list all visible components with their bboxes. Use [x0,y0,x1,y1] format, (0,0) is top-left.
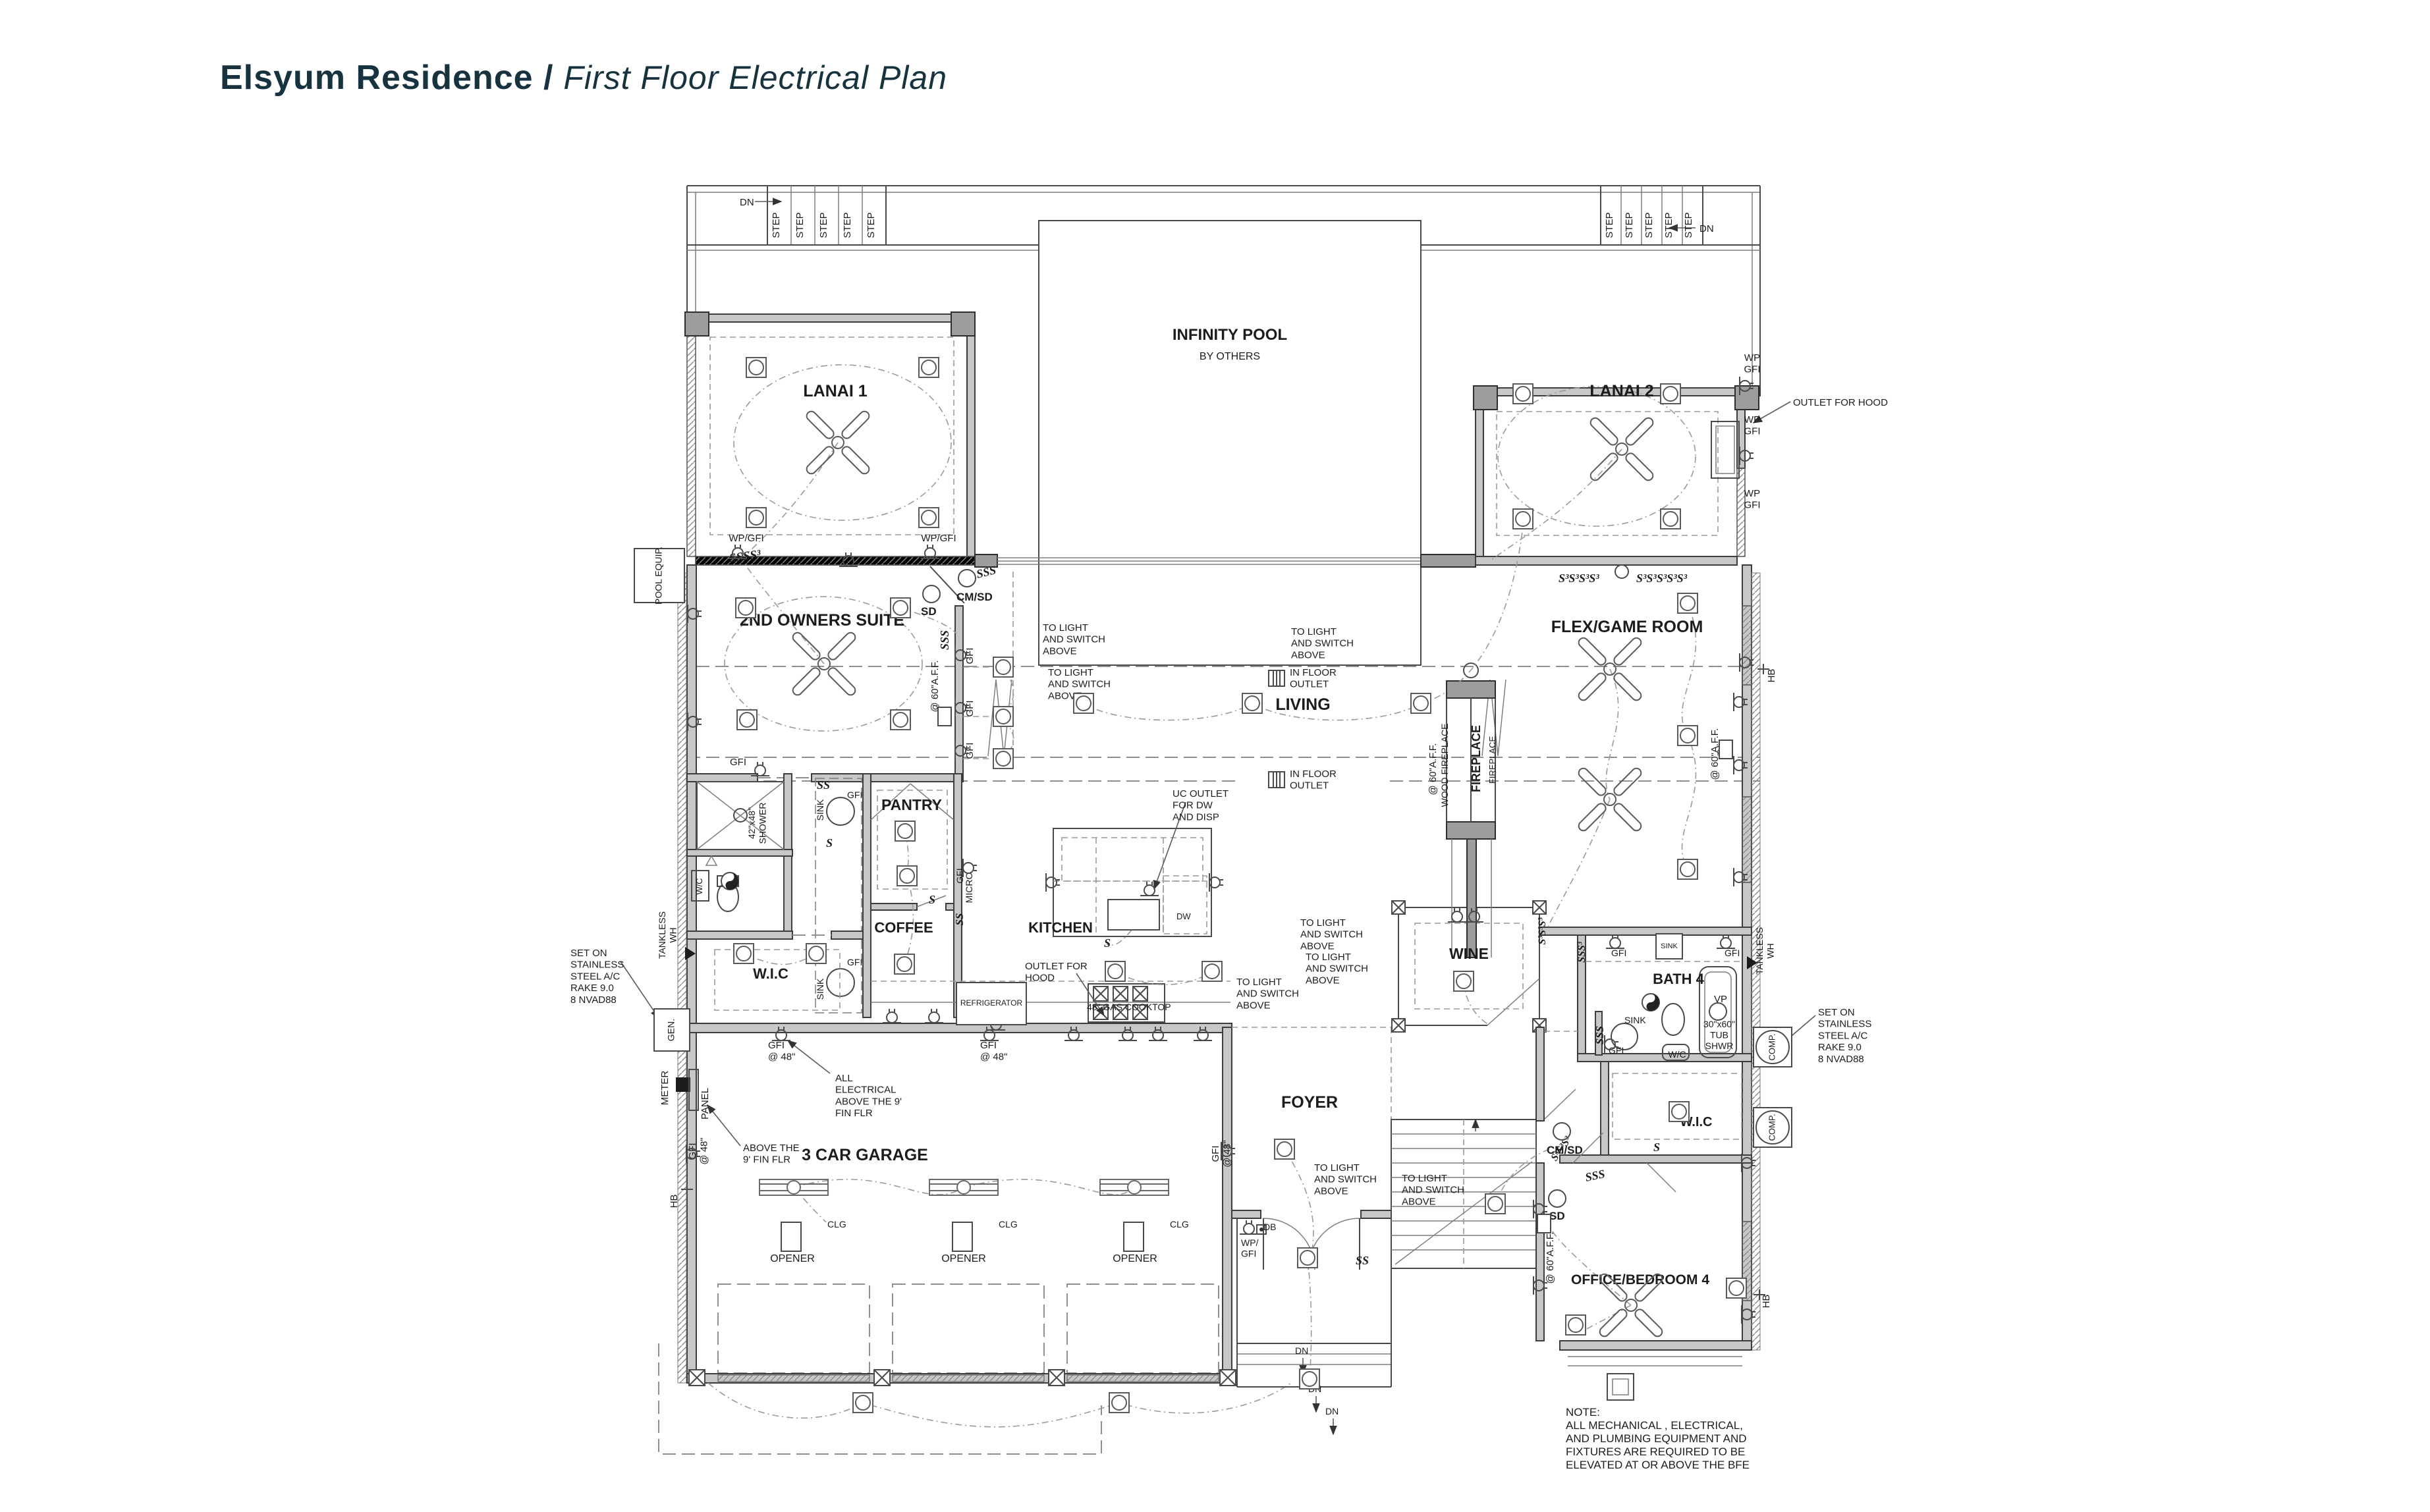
recessed-light [1202,961,1222,981]
recessed-light [993,657,1013,677]
comp-box: COMP. [1753,1108,1792,1147]
tankless-wh: TANKLESSWH [657,911,678,959]
duplex-outlet [1606,934,1624,948]
switch: SSS [938,630,951,650]
island-sink-box [1108,900,1159,930]
room-label-lanai-1: LANAI 1 [803,382,867,400]
recessed-light [853,1393,873,1413]
clg: CLG [999,1219,1018,1229]
dn-label: DN [1295,1345,1308,1356]
tv-outlet-box [938,707,951,726]
to-light-switch: TO LIGHTAND SWITCHABOVE [1291,626,1354,661]
recessed-light [746,358,766,377]
pool-equip-box: POOL EQUIP. [634,547,684,605]
outlet-for-hood: OUTLET FORHOOD [1025,961,1088,984]
fireplace-label: FIREPLACE [1470,725,1483,792]
recessed-light [1726,1278,1746,1298]
recessed-light [746,508,766,527]
room-label-pantry: PANTRY [881,796,942,813]
comp-box-label: COMP. [1767,1114,1777,1141]
sd: SD [921,605,937,618]
floor-plan: LANAI 1LANAI 2INFINITY POOL2ND OWNERS SU… [0,0,2430,1512]
step-label: STEP [818,212,829,238]
sd-light [923,585,940,603]
room-label-flex-game-room: FLEX/GAME ROOM [1551,618,1703,636]
gfi: GFI [1611,948,1626,958]
recessed-light [1669,1102,1689,1121]
room-label-infinity-pool: INFINITY POOL [1173,326,1287,344]
opener-box [953,1222,972,1251]
step-label: STEP [866,212,877,238]
tv-outlet-box [1537,1214,1551,1233]
recessed-light [1678,859,1698,879]
vp: VP [1714,994,1727,1005]
gfi: GFI@ 48" [980,1040,1007,1063]
panel: PANEL [700,1088,711,1120]
step-label: STEP [1604,212,1615,238]
pool-equip-box-label: POOL EQUIP. [653,547,664,605]
dw: DW [1176,911,1191,921]
db: DB [1263,1222,1276,1232]
step-label: STEP [1643,212,1655,238]
switch: SSS³ [1576,942,1588,963]
opener: OPENER [770,1253,815,1264]
recessed-light [897,866,917,886]
to-light-switch: TO LIGHTAND SWITCHABOVE [1043,622,1105,657]
room-label-foyer: FOYER [1281,1093,1338,1112]
wc: W/C [694,878,704,894]
wood-fireplace: WOOD FIREPLACE [1439,724,1450,807]
fireplace-label: FIREPLACE [1487,736,1497,784]
in-floor-outlet: IN FLOOROUTLET [1290,769,1337,792]
sheet-name: First Floor Electrical Plan [553,59,947,96]
dn-label: DN [1699,223,1714,234]
project-name: Elsyum Residence / [220,59,553,97]
room-label-lanai-2: LANAI 2 [1589,382,1653,400]
room-label-coffee: COFFEE [874,919,933,936]
all-electrical-note: ALLELECTRICALABOVE THE 9'FIN FLR [835,1073,902,1119]
wp-gfi: WPGFI [1744,488,1761,511]
recessed-light [1513,384,1533,404]
to-light-switch: TO LIGHTAND SWITCHABOVE [1236,977,1299,1011]
switch: S³S³S³S³ [1559,572,1599,585]
sink: SINK [1624,1015,1646,1025]
sd: SD [1549,1210,1565,1222]
gen-box: GEN. [654,1009,690,1051]
dn-label: DN [1325,1406,1339,1417]
floor-outlet [1269,772,1284,788]
recessed-light [806,944,826,963]
tub: 30"x60"TUBSHWR [1703,1019,1735,1051]
recessed-light [1298,1248,1317,1268]
recessed-light [993,749,1013,769]
hb: HB [669,1195,680,1208]
to-light-switch: TO LIGHTAND SWITCHABOVE [1300,917,1363,952]
wp-gfi: WP/GFI [921,533,956,544]
opener-box [1124,1222,1144,1251]
wp-gfi: WP/GFI [729,533,763,544]
set-on-ac: SET ONSTAINLESSSTEEL A/CRAKE 9.08 NVAD88 [570,948,624,1006]
refrigerator-box: REFRIGERATOR [956,983,1026,1025]
tankless-wh: TANKLESSWH [1754,927,1776,975]
switch: SS [817,778,830,792]
recessed-light [1242,693,1262,713]
recessed-light [737,710,757,730]
room-label-w-i-c: W.I.C [753,965,788,982]
floor-outlet [1269,670,1284,686]
step-label: STEP [1683,212,1694,238]
recessed-light [891,710,910,730]
recessed-light [1513,509,1533,529]
recessed-light [993,707,1013,726]
room-label-office-bedroom-4: OFFICE/BEDROOM 4 [1571,1272,1709,1287]
recessed-light [895,821,915,841]
recessed-light [1109,1393,1129,1413]
step-label: STEP [1663,212,1674,238]
gas-cooktop: 48" GAS COOKTOP [1087,1002,1171,1012]
switch: SSS [1584,1167,1607,1184]
switch: S³S³S³ [1537,917,1548,944]
recessed-light [1300,1369,1319,1389]
hb: HB [1761,1295,1772,1309]
recessed-light [1411,693,1431,713]
step-label: STEP [794,212,806,238]
comp-box-label: COMP. [1767,1034,1777,1061]
switch: S [826,836,833,850]
micro: MICRO [964,873,974,904]
aff-label: @ 60"A.F.F. [929,661,941,713]
above-fin-flr: ABOVE THE9' FIN FLR [743,1143,800,1166]
recessed-light [895,954,914,974]
cm-sd: CM/SD [956,591,993,603]
wp-gfi: WPGFI [1744,352,1761,375]
recessed-light [1566,1315,1586,1335]
wc: W/C [1668,1049,1686,1060]
recessed-light [1454,971,1474,991]
drawing-title: Elsyum Residence / First Floor Electrica… [220,58,947,97]
duplex-outlet [1448,908,1466,922]
tv-outlet-box [1719,740,1732,759]
hb: HB [1766,669,1777,683]
fluorescent-fixture [1100,1179,1169,1195]
clg: CLG [827,1219,846,1229]
to-light-switch: TO LIGHTAND SWITCHABOVE [1306,952,1368,986]
shower-size: 42"x48"SHOWER [746,803,768,844]
room-label-2nd-owners-suite: 2ND OWNERS SUITE [740,611,904,630]
opener: OPENER [941,1253,986,1264]
recessed-light [1105,961,1125,981]
cm-sd-light [958,570,976,587]
bath4-sink-box: SINK [1656,934,1682,959]
gfi: GFI [847,790,862,800]
switch: S [1104,936,1111,950]
note: NOTE:ALL MECHANICAL , ELECTRICAL,AND PLU… [1566,1406,1750,1471]
gen-box-label: GEN. [666,1019,677,1041]
duplex-outlet [1717,934,1735,948]
in-floor-outlet: IN FLOOROUTLET [1290,667,1337,690]
recessed-light [919,508,939,527]
wp-gfi: WPGFI [1744,414,1761,437]
sink: SINK [815,978,825,1000]
to-light-switch: TO LIGHTAND SWITCHABOVE [1314,1162,1377,1197]
recessed-light [919,358,939,377]
clg: CLG [1170,1219,1189,1229]
sink: SINK [815,799,825,821]
step-label: STEP [771,212,782,238]
duplex-outlet [925,1009,943,1023]
switch: S³S³S³S³S³ [1636,572,1688,585]
recessed-light [1661,384,1680,404]
room-label-kitchen: KITCHEN [1028,919,1093,936]
outlet-for-hood: OUTLET FOR HOOD [1793,397,1888,408]
gfi: GFI [1725,948,1740,958]
duplex-outlet [1240,1220,1258,1234]
sd-light [1549,1190,1566,1207]
recessed-light [1074,693,1093,713]
duplex-outlet [883,1009,901,1023]
room-label-bath-4: BATH 4 [1653,971,1705,987]
aff-label: @ 60"A.F.F. [1427,743,1439,796]
opener-box [781,1222,801,1251]
aff-label: @ 60"A.F.F. [1545,1232,1556,1284]
recessed-light [734,944,754,963]
fluorescent-fixture [929,1179,998,1195]
room-label-living: LIVING [1275,695,1330,714]
room-label-wine: WINE [1449,945,1489,962]
recessed-light [736,598,756,618]
opener: OPENER [1113,1253,1157,1264]
refrigerator-box-label: REFRIGERATOR [960,998,1023,1008]
gfi: GFI [730,757,746,768]
step-label: STEP [842,212,853,238]
recessed-light [1678,593,1698,613]
switch: S [929,893,935,906]
recessed-light [1661,509,1680,529]
recessed-light [1485,1194,1505,1214]
meter: METER [659,1071,671,1106]
gfi: GFI [847,957,862,967]
set-on-ac: SET ONSTAINLESSSTEEL A/CRAKE 9.08 NVAD88 [1818,1007,1871,1065]
dn-label: DN [740,197,754,208]
recessed-light [891,598,910,618]
bath4-sink-box-label: SINK [1661,942,1678,950]
switch: S [1653,1141,1660,1154]
recessed-light [1275,1139,1294,1159]
switch: SS [953,913,966,926]
to-light-switch: TO LIGHTAND SWITCHABOVE [1402,1173,1464,1207]
pool-subtitle: BY OTHERS [1200,351,1260,362]
uc-outlet: UC OUTLETFOR DWAND DISP [1173,788,1229,823]
switch: SS [1356,1254,1369,1267]
recessed-light [1678,726,1698,745]
sheet: Elsyum Residence / First Floor Electrica… [0,0,2430,1512]
room-label-3-car-garage: 3 CAR GARAGE [802,1146,928,1164]
step-label: STEP [1624,212,1635,238]
exhaust-fan [721,873,738,890]
wp-gfi: WP/GFI [1241,1237,1259,1259]
comp-box: COMP. [1753,1027,1792,1067]
exhaust-fan [1642,994,1659,1011]
